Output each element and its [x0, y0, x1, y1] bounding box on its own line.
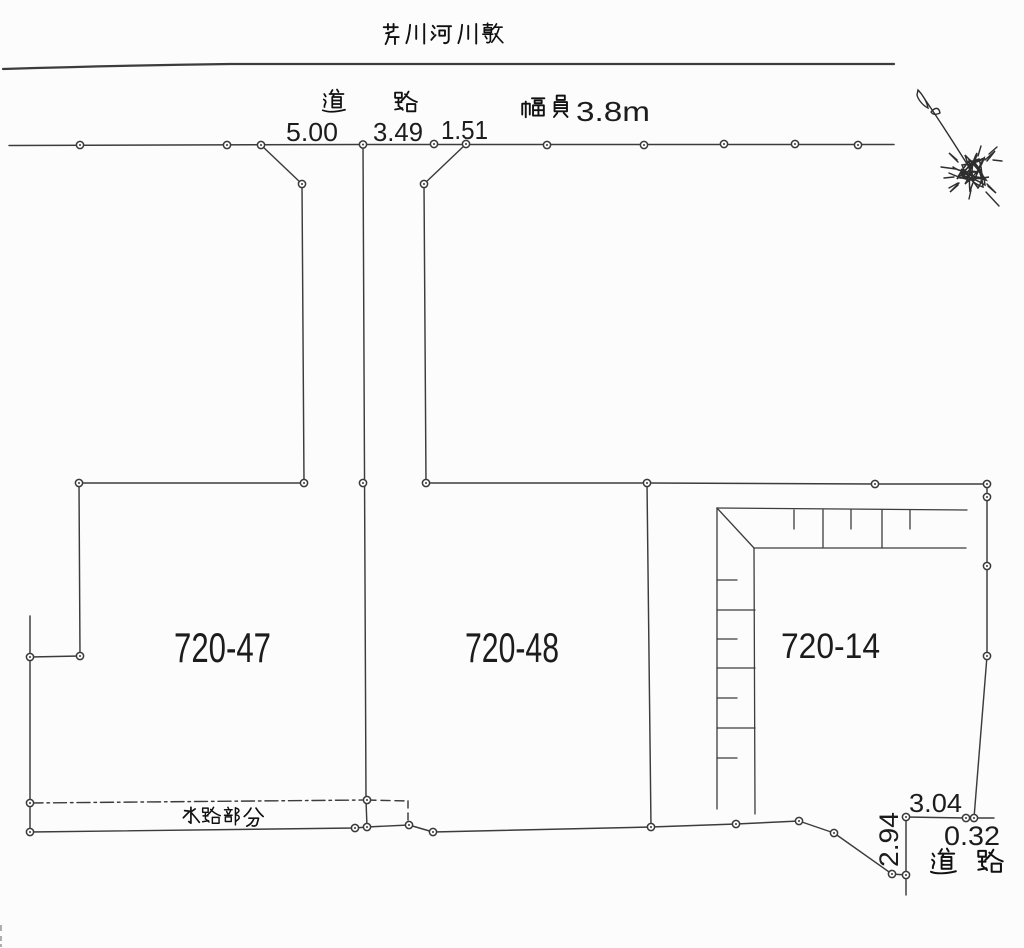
svg-text:3.04: 3.04	[909, 788, 962, 818]
svg-text:2.94: 2.94	[874, 812, 904, 867]
svg-text:5.00: 5.00	[286, 117, 338, 147]
svg-text:3.49: 3.49	[373, 117, 423, 147]
svg-text:3.8m: 3.8m	[576, 96, 650, 127]
svg-text:720-47: 720-47	[174, 624, 271, 671]
svg-text:1.51: 1.51	[441, 115, 488, 145]
svg-text:720-14: 720-14	[781, 627, 880, 666]
svg-text:0.32: 0.32	[944, 821, 1000, 851]
svg-text:720-48: 720-48	[465, 624, 559, 671]
